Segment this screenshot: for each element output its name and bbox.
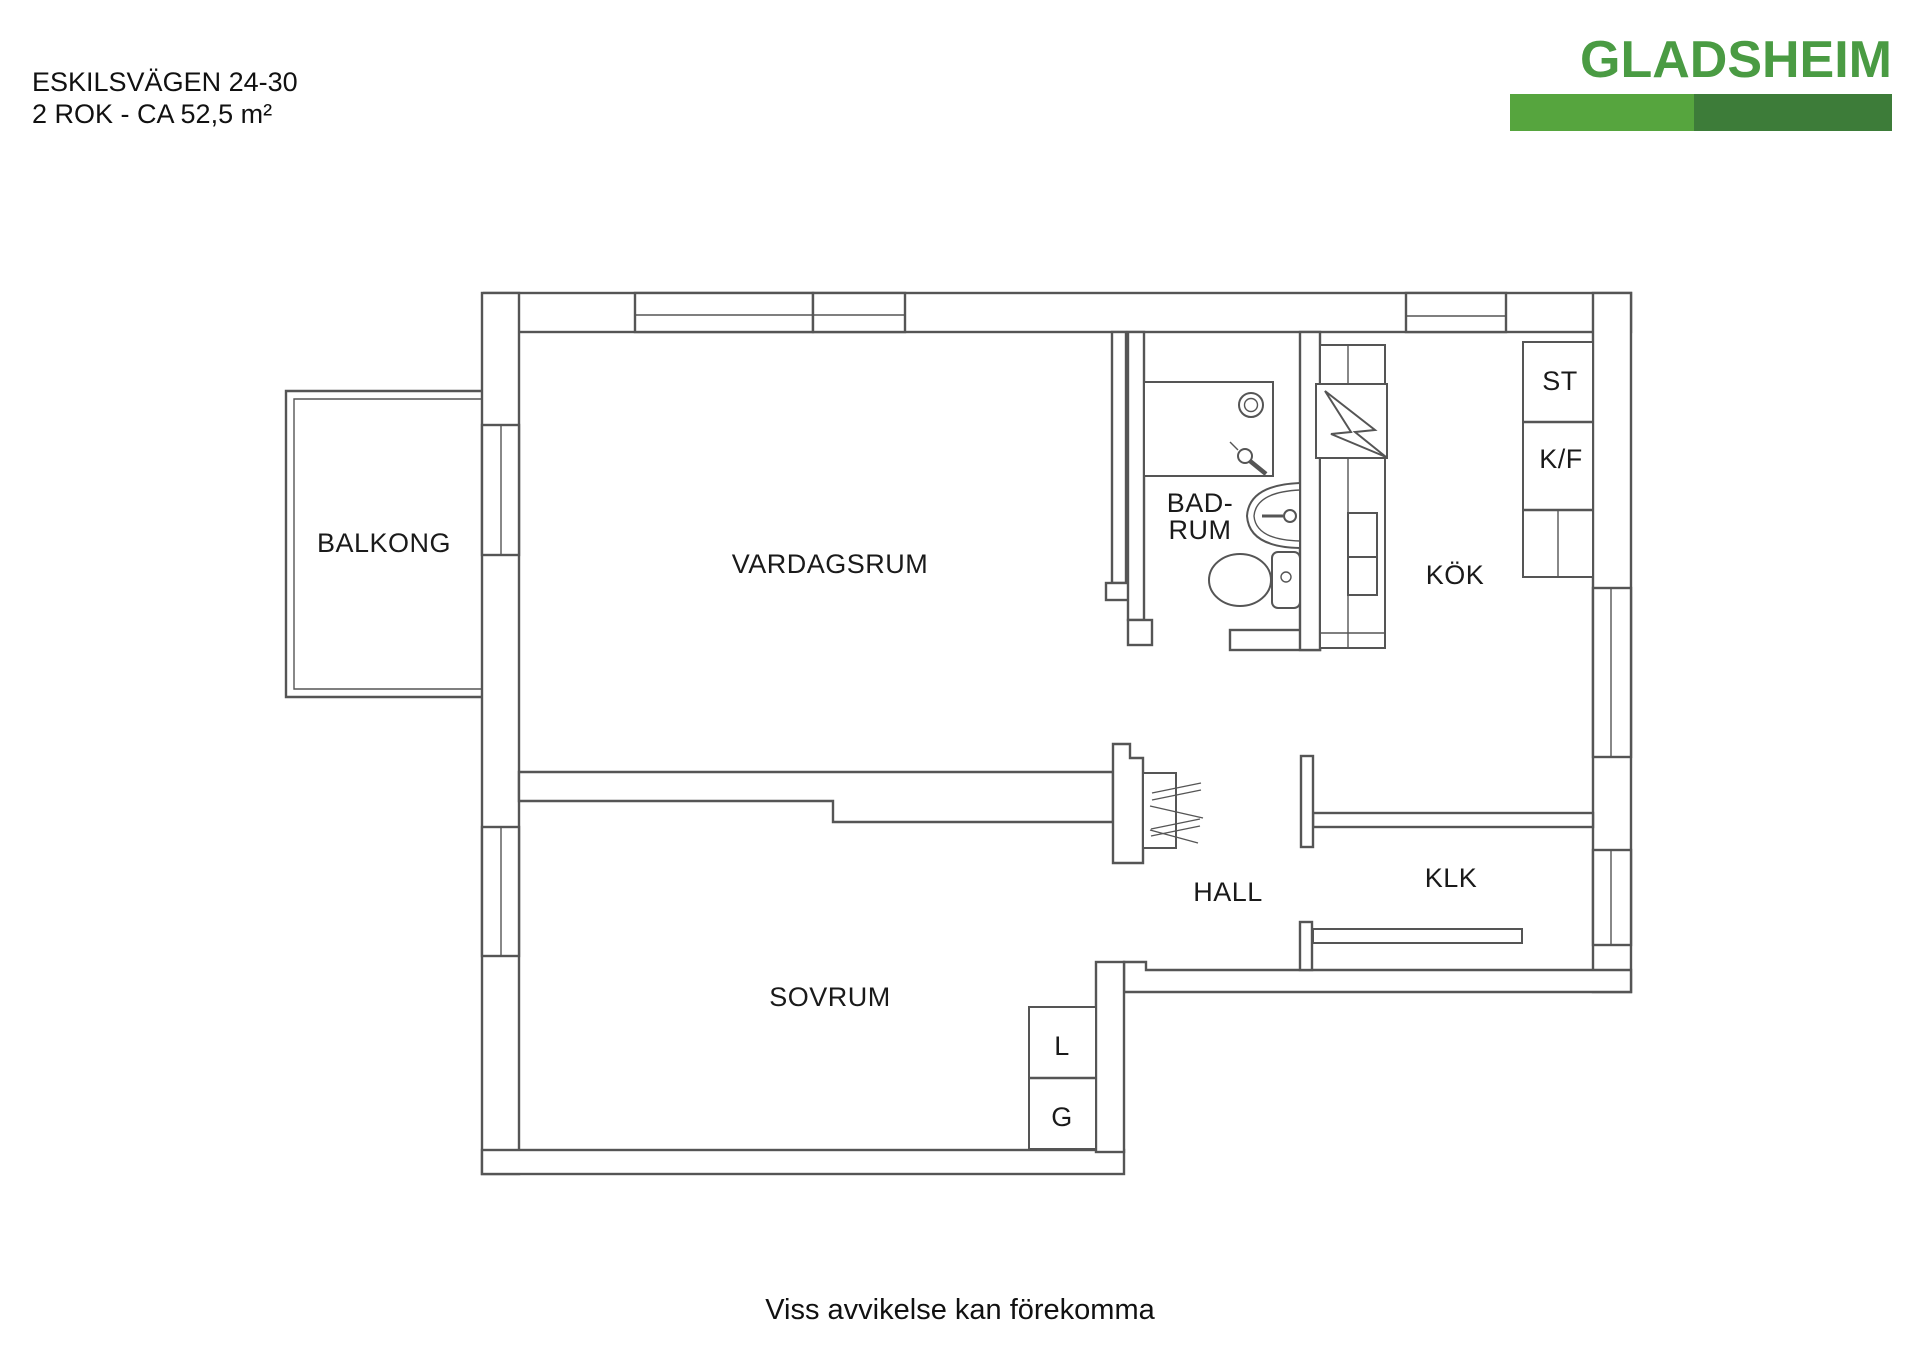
bathroom-west-wall xyxy=(1128,332,1144,620)
electrical-panel-icon xyxy=(1316,384,1387,458)
label-balcony: BALKONG xyxy=(317,528,451,558)
living-room-east-wall xyxy=(1112,332,1126,583)
bedroom-bottom-wall xyxy=(482,1150,1124,1174)
kitchen-pantry-cabinets xyxy=(1320,345,1385,384)
label-klk: KLK xyxy=(1425,863,1478,893)
klk-top-wall xyxy=(1313,813,1593,827)
windows xyxy=(482,293,1631,956)
klk-upper-stub-wall xyxy=(1301,756,1313,847)
window-top-b xyxy=(813,293,905,332)
hall-bottom-wall xyxy=(1124,962,1631,992)
sink-icon xyxy=(1247,483,1300,548)
balcony-door xyxy=(482,425,519,555)
label-living-room: VARDAGSRUM xyxy=(732,549,929,579)
stove-icon xyxy=(1348,513,1377,557)
label-st-closet: ST xyxy=(1542,366,1578,396)
entrance-door-icon xyxy=(1143,773,1203,848)
label-bathroom-1: BAD- xyxy=(1167,488,1234,518)
kitchen-counter-left xyxy=(1320,458,1385,648)
window-top-a xyxy=(635,293,813,332)
bedroom-east-wall xyxy=(1096,962,1124,1152)
klk-clothes-rail xyxy=(1313,929,1522,943)
window-right-2 xyxy=(1593,850,1631,945)
label-fridge-freezer: K/F xyxy=(1539,444,1583,474)
window-bedroom-west xyxy=(482,827,519,956)
label-closet-l: L xyxy=(1054,1031,1070,1061)
disclaimer-text: Viss avvikelse kan förekomma xyxy=(0,1294,1920,1327)
floorplan-drawing: BALKONG VARDAGSRUM BAD- RUM KÖK ST K/F H… xyxy=(0,0,1920,1357)
window-kitchen xyxy=(1406,293,1506,332)
sink-unit-icon xyxy=(1348,557,1377,595)
living-bedroom-divider-wall xyxy=(519,772,1113,822)
label-hall: HALL xyxy=(1193,877,1263,907)
floorplan-page: ESKILSVÄGEN 24-30 2 ROK - CA 52,5 m² GLA… xyxy=(0,0,1920,1357)
label-bathroom-2: RUM xyxy=(1169,515,1232,545)
shower-icon xyxy=(1144,382,1273,476)
klk-lower-stub-wall xyxy=(1300,922,1312,970)
label-closet-g: G xyxy=(1051,1102,1073,1132)
bathroom-door-post xyxy=(1128,620,1152,645)
label-bedroom: SOVRUM xyxy=(769,982,891,1012)
bathroom-east-wall xyxy=(1300,332,1320,650)
entrance-door-post xyxy=(1113,744,1143,863)
toilet-icon xyxy=(1209,552,1300,608)
window-right-1 xyxy=(1593,588,1631,757)
label-kitchen: KÖK xyxy=(1426,560,1485,590)
